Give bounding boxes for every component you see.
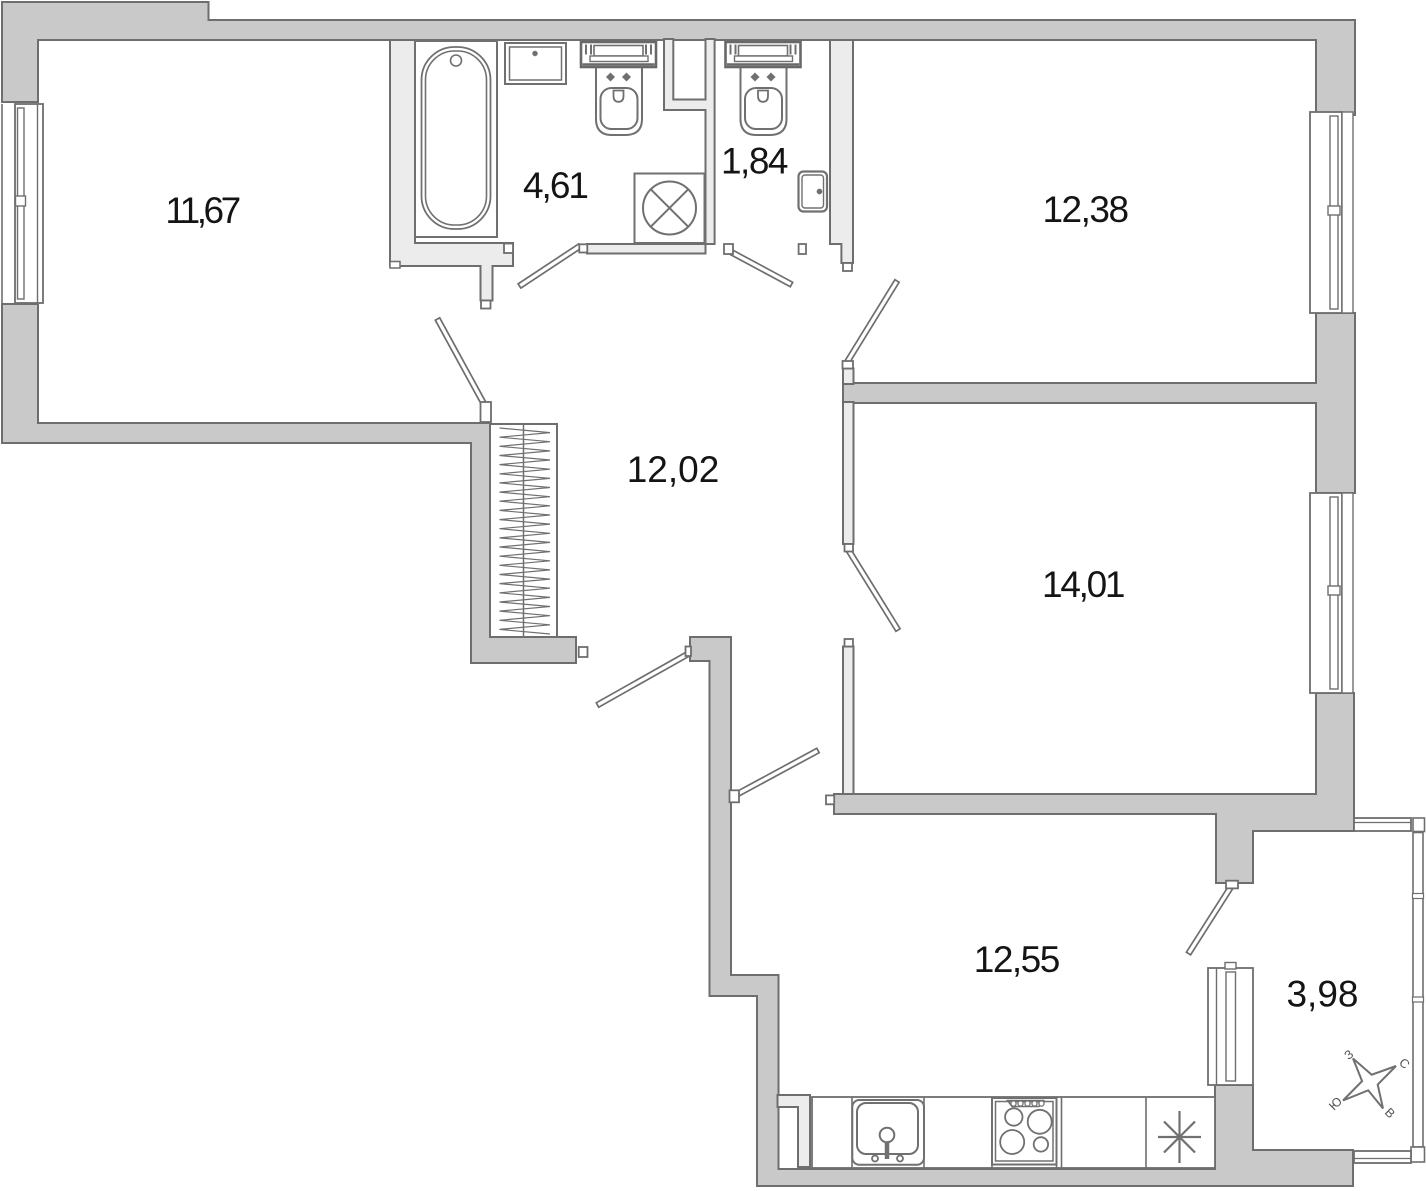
svg-text:4,61: 4,61 (523, 165, 587, 206)
svg-text:1,84: 1,84 (721, 141, 788, 182)
svg-text:12,55: 12,55 (974, 939, 1060, 980)
svg-text:14,01: 14,01 (1042, 564, 1124, 605)
svg-text:11,67: 11,67 (165, 190, 239, 231)
svg-text:12,38: 12,38 (1042, 189, 1127, 230)
svg-text:12,02: 12,02 (627, 449, 720, 490)
svg-text:3,98: 3,98 (1286, 974, 1358, 1015)
